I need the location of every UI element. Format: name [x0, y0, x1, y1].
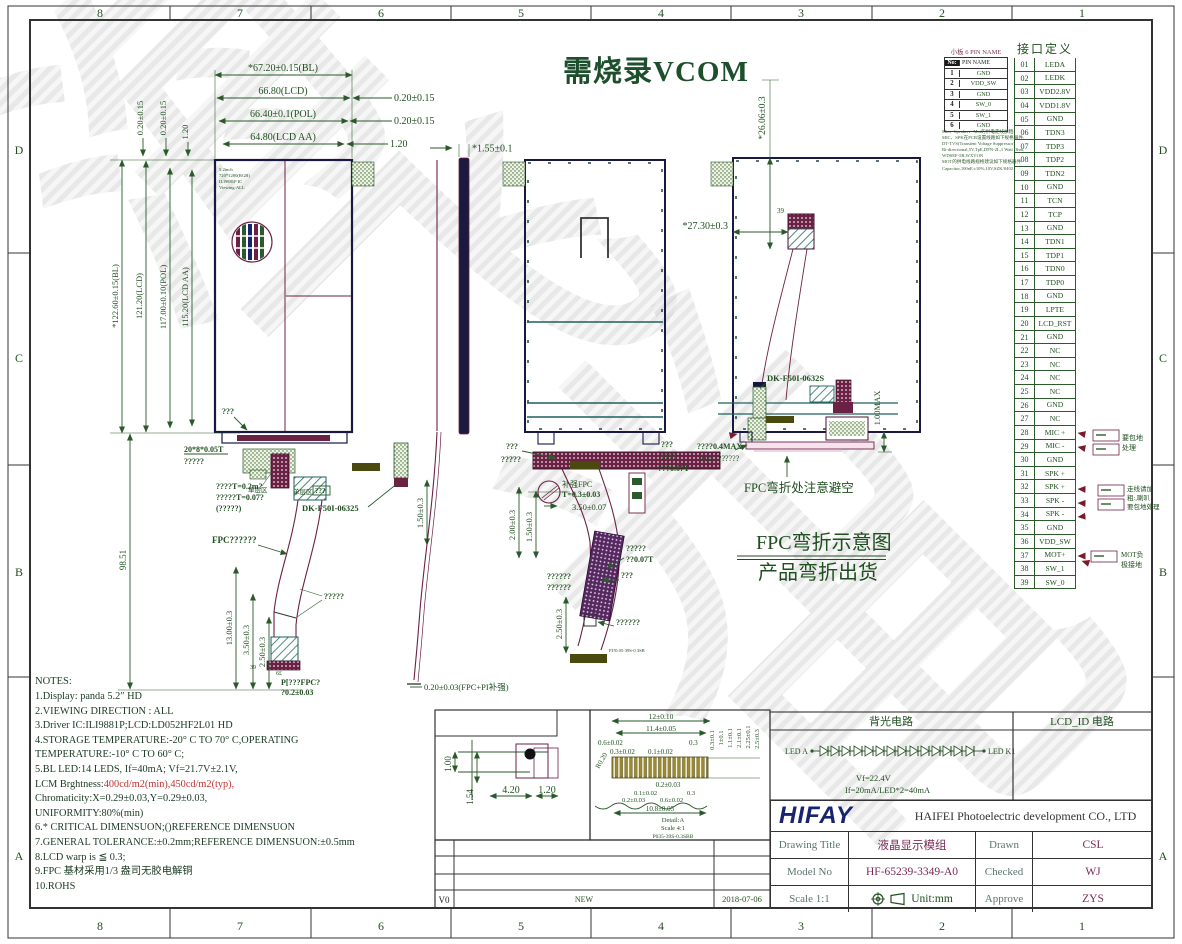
annotation: ??????: [547, 583, 571, 592]
table-row: 35 GND: [1014, 521, 1076, 535]
revision-code: V0: [439, 895, 450, 905]
dimension-label: 0.1±0.02: [634, 790, 657, 797]
detail-box: R0.20 12±0.10 11.4±0.05 0.6±0.02 0.3±0.0…: [590, 710, 770, 840]
zone-label: A: [15, 849, 24, 863]
note-line: Chromaticity:X=0.29±0.03,Y=0.29±0.03,: [35, 792, 435, 807]
backlight-circuit: 背光电路 LED A LED K1 Vf=22.4V If=20mA/LED*2…: [770, 712, 1152, 800]
detail-caption: P035-39S-0.3SBB: [653, 834, 694, 840]
table-row: 36 VDD_SW: [1014, 535, 1076, 549]
table-row: 10 GND: [1014, 181, 1076, 195]
zone-label: 7: [237, 6, 243, 20]
zone-label: C: [15, 351, 23, 365]
annotation: ???: [222, 407, 234, 416]
annotation: ???: [315, 487, 326, 495]
zone-label: 7: [237, 919, 243, 933]
rear-view: ??? ????? 补强FPC T=0.3±0.03 3.50±0.07 2.0…: [501, 160, 720, 663]
annotation: ????: [661, 452, 677, 461]
page-title: 需烧录VCOM: [563, 48, 749, 90]
dimension-label: 1.20: [180, 125, 190, 140]
table-row: 33 SPK -: [1014, 494, 1076, 508]
table-row: 08 TDP2: [1014, 153, 1076, 167]
table-row: 3 GND: [945, 89, 1007, 100]
zone-label: B: [15, 565, 23, 579]
table-row: 1 GND: [945, 68, 1007, 79]
dimension-label: 0.20±0.15: [135, 101, 145, 135]
if-label: If=20mA/LED*2=40mA: [845, 785, 931, 795]
table-row: 16 TDN0: [1014, 262, 1076, 276]
notch-outline: [581, 218, 608, 258]
note-line: 8.LCD warp is ≦ 0.3;: [35, 851, 435, 866]
annotation: FPC弯折处注意避空: [744, 480, 854, 495]
dimension-label: R0.20: [594, 751, 610, 770]
dimension-label: 12±0.10: [649, 712, 674, 721]
annotation: 20*8*0.05T: [184, 445, 224, 454]
dimension-label: 0.6±0.02: [660, 797, 683, 804]
table-row: 2 VDD_SW: [945, 78, 1007, 89]
table-row: 32 SPK +: [1014, 480, 1076, 494]
small-board-title: 小板 6 PIN NAME: [944, 46, 1008, 56]
table-row: 29 MIC -: [1014, 440, 1076, 454]
notes-list: 1.Display: panda 5.2″ HD 2.VIEWING DIREC…: [35, 690, 435, 894]
dimension-label: 1±0.1: [718, 731, 725, 746]
note-line: 2.VIEWING DIRECTION : ALL: [35, 705, 435, 720]
zone-label: 1: [1079, 919, 1085, 933]
pin-annotations: 要包地 处理 走线请加 粗:,喇叭 要包地处理 MOT负 极接地: [1078, 430, 1160, 577]
annotation: T=0.3±0.03: [562, 490, 600, 499]
annotation: ??????: [616, 618, 640, 627]
note-line: 3.Driver IC:ILI9881P;LCD:LD052HF2L01 HD: [35, 719, 435, 734]
checked-label: Checked: [976, 859, 1033, 885]
dimension-label: 66.80(LCD): [258, 86, 307, 97]
annotation: ?????: [324, 592, 344, 601]
note-line: TEMPERATURE:-10° C TO 60° C;: [35, 748, 435, 763]
dimension-label: *26.06±0.3: [758, 96, 768, 139]
table-row: 25 NC: [1014, 385, 1076, 399]
zone-label: 3: [798, 6, 804, 20]
dimension-label: 11.4±0.05: [646, 724, 676, 733]
annotation: FPC??????: [212, 535, 257, 545]
annotation: ???: [661, 440, 673, 449]
table-row: 27 NC: [1014, 412, 1076, 426]
dimension-label: 1.54: [465, 789, 475, 805]
table-row: 05 GND: [1014, 113, 1076, 127]
dimension-label: 2.00±0.3: [507, 510, 517, 540]
model-no-value: HF-65239-3349-A0: [849, 859, 976, 885]
dimension-label: 1.20: [538, 785, 556, 796]
connector-label: DK-F50I-0632S: [767, 373, 824, 383]
company-name: HAIFEI Photoelectric development CO., LT…: [899, 809, 1152, 824]
drawing-sheet: 海 飞 光 电: [0, 0, 1182, 944]
dimension-label: 1.00MAX: [872, 391, 882, 426]
table-row: 09 TDN2: [1014, 167, 1076, 181]
checked-value: WJ: [1033, 859, 1153, 885]
detail-caption: Scale 4:1: [661, 825, 685, 832]
drawn-value: CSL: [1033, 832, 1153, 858]
dimension-label: 2.5±0.3: [754, 729, 761, 749]
small-board-rows: 1 GND 2 VDD_SW 3 GND 4: [945, 68, 1007, 131]
note-line: 9.FPC 基材采用1/3 盎司无胶电解铜: [35, 865, 435, 880]
dimension-label: *122.60±0.15(BL): [110, 264, 120, 328]
front-fpc: ??? 20*8*0.05T ????? 单层区 单层区 ??? ????T=0…: [184, 407, 427, 697]
table-row: 30 GND: [1014, 453, 1076, 467]
zone-label: 6: [378, 919, 384, 933]
annotation: ??????: [547, 572, 571, 581]
zone-label: 2: [939, 6, 945, 20]
revision-table: V0 NEW 2018-07-06: [435, 840, 770, 908]
scale-label: Scale 1:1: [771, 886, 849, 912]
dimension-label: 13.00±0.3: [224, 611, 234, 645]
annotation: 要包地: [1122, 433, 1143, 442]
pin-table: 01 LEDA 02 LEDK 03 VDD2.8V 04 VDD1.8V 05…: [1014, 58, 1076, 589]
note-line: 10.ROHS: [35, 880, 435, 895]
table-row: 07 TDP3: [1014, 140, 1076, 154]
backlight-title: 背光电路: [869, 714, 913, 728]
note-line: 6.* CRITICAL DIMENSUON;()REFERENCE DIMEN…: [35, 821, 435, 836]
table-row: 34 SPK -: [1014, 508, 1076, 522]
dimension-label: 2.1±0.1: [736, 728, 743, 748]
zone-label: 6: [378, 6, 384, 20]
pin-number: 39: [777, 207, 785, 215]
dimension-label: *67.20±0.15(BL): [248, 63, 318, 74]
small-board-header: No: PIN NAME: [945, 58, 1007, 68]
annotation: ???0.07T: [658, 464, 690, 473]
zone-label: 3: [798, 919, 804, 933]
small-board-table: 小板 6 PIN NAME No: PIN NAME 1 GND 2 VDD_S…: [944, 46, 1008, 132]
unit-cell: Unit:mm: [849, 886, 976, 912]
projection-symbol-icon: [871, 892, 907, 906]
dimension-label: 0.20±0.15: [394, 93, 435, 104]
model-no-label: Model No: [771, 859, 849, 885]
dimension-label: *27.30±0.3: [683, 221, 729, 232]
note-line: 5.BL LED:14 LEDS, If=40mA; Vf=21.7V±2.1V…: [35, 763, 435, 778]
vf-label: Vf=22.4V: [856, 773, 892, 783]
annotation: ??0.07T: [626, 555, 654, 564]
side-view: *1.55±0.1 0.20±0.03(FPC+PI补强): [407, 144, 513, 693]
tape-pad: [352, 162, 374, 186]
dimension-label: 98.51: [118, 550, 128, 570]
dimension-label: 0.2±0.03: [656, 781, 681, 789]
table-row: 4 SW_0: [945, 99, 1007, 110]
front-left-dimensions: *122.60±0.15(BL) 121.20(LCD) 117.00±0.10…: [110, 160, 302, 690]
table-row: 02 LEDK: [1014, 72, 1076, 86]
table-row: 31 SPK +: [1014, 467, 1076, 481]
table-row: 5 SW_1: [945, 110, 1007, 121]
table-row: 26 GND: [1014, 399, 1076, 413]
zone-label: 8: [97, 6, 103, 20]
dimension-label: 0.1±0.02: [648, 748, 673, 756]
table-row: 11 TCN: [1014, 194, 1076, 208]
annotation: ???: [621, 571, 633, 580]
dimension-label: 3.50±0.07: [572, 502, 606, 512]
annotation: ?????T=0.07?: [216, 493, 264, 502]
led-cathode-label: LED K1: [988, 747, 1015, 756]
zone-label: 1: [1079, 6, 1085, 20]
zone-label: C: [1159, 351, 1167, 365]
bent-view: *26.06±0.3 *27.30±0.3 39 DK-F50I-0632S: [658, 80, 920, 495]
table-row: 03 VDD2.8V: [1014, 85, 1076, 99]
dimension-label: 117.00±0.10(POL): [158, 265, 168, 329]
dimension-label: 2.25±0.1: [745, 725, 752, 748]
company-logo: HIFAY: [779, 802, 899, 830]
drawing-title-value: 液晶显示模组: [849, 832, 976, 858]
table-row: 18 GND: [1014, 290, 1076, 304]
annotation: ????T=0.2m?: [216, 482, 263, 491]
table-row: 12 TCP: [1014, 208, 1076, 222]
annotation: ?????: [501, 455, 521, 464]
bend-caption-line2: 产品弯折出货: [758, 561, 878, 584]
annotation: 要包地处理: [1127, 502, 1160, 511]
dimension-label: 10.8±0.05: [646, 805, 675, 813]
dimension-label: 121.20(LCD): [134, 273, 144, 319]
zone-label: A: [1159, 849, 1168, 863]
bend-caption-line1: FPC弯折示意图: [756, 531, 892, 554]
dimension-label: 66.40±0.1(POL): [250, 109, 316, 120]
table-row: 39 SW_0: [1014, 576, 1076, 590]
table-row: 06 TDN3: [1014, 126, 1076, 140]
zone-label: 5: [518, 6, 524, 20]
annotation: 极接地: [1121, 560, 1142, 569]
table-row: 17 TDP0: [1014, 276, 1076, 290]
silver-paste-box: 1.00 1.54 4.20 1.20: [435, 710, 590, 840]
bend-caption: FPC弯折示意图 产品弯折出货: [737, 531, 892, 584]
dimension-label: 1.20: [390, 139, 408, 150]
detail-caption: Detail:A: [662, 817, 685, 824]
revision-desc: NEW: [575, 895, 594, 904]
table-row: 22 NC: [1014, 344, 1076, 358]
connector-label: DK-F50I-06325: [302, 503, 359, 513]
table-row: 20 LCD_RST: [1014, 317, 1076, 331]
annotation: 单层区: [293, 487, 313, 496]
annotation: MOT负: [1121, 550, 1144, 559]
front-view: 5.2inch 720*1280(RGB) ILI9881P IC Viewin…: [110, 63, 435, 697]
dimension-label: 1.50±0.3: [415, 498, 425, 528]
dimension-label: 0.2±0.03: [622, 797, 645, 804]
screen-info: 5.2inch 720*1280(RGB) ILI9881P IC Viewin…: [219, 167, 250, 190]
unit-label: Unit:mm: [911, 893, 953, 905]
dimension-label: 0.3±0.1: [709, 730, 716, 750]
pin-table-title: 接口定义: [1014, 40, 1076, 57]
zone-label: D: [15, 143, 24, 157]
dimension-label: 0.3: [687, 790, 695, 797]
zone-label: 5: [518, 919, 524, 933]
table-row: 28 MIC +: [1014, 426, 1076, 440]
drawn-label: Drawn: [976, 832, 1033, 858]
dimension-label: 0.20±0.15: [158, 101, 168, 135]
table-row: 37 MOT+: [1014, 549, 1076, 563]
silver-paste-dot: [525, 749, 536, 760]
table-row: 23 NC: [1014, 358, 1076, 372]
svg-text:720*1280(RGB): 720*1280(RGB): [219, 173, 250, 178]
dimension-label: 2.50±0.3: [554, 609, 564, 639]
approve-value: ZYS: [1033, 886, 1153, 912]
svg-text:5.2inch: 5.2inch: [219, 167, 233, 172]
annotation: 补强FPC: [562, 479, 592, 489]
table-row: 24 NC: [1014, 371, 1076, 385]
table-row: 21 GND: [1014, 331, 1076, 345]
lcd-id-title: LCD_ID 电路: [1050, 715, 1114, 728]
dimension-label: 1.1±0.1: [727, 728, 734, 748]
annotation: PI?0.05-39S-0.3SB: [609, 648, 645, 653]
front-top-dimensions: *67.20±0.15(BL) 66.80(LCD) 66.40±0.1(POL…: [135, 63, 435, 158]
notes-block: NOTES: 1.Display: panda 5.2″ HD 2.VIEWIN…: [35, 676, 435, 894]
dimension-label: 1.50±0.3: [524, 512, 534, 542]
dimension-label: *1.55±0.1: [472, 144, 513, 155]
table-row: 01 LEDA: [1014, 58, 1076, 72]
dimension-label: 1.00: [443, 756, 453, 772]
svg-text:Viewing:ALL: Viewing:ALL: [219, 185, 245, 190]
zone-label: 8: [97, 919, 103, 933]
annotation: 0.05T??????: [699, 454, 740, 463]
table-row: 14 TDN1: [1014, 235, 1076, 249]
dimension-label: 115.20(LCD AA): [180, 267, 190, 327]
dimension-label: 2.50±0.3: [257, 637, 267, 667]
dimension-label: 3.50±0.3: [241, 625, 251, 655]
annotation: ?????: [626, 544, 646, 553]
dimension-label: 0.6±0.02: [598, 739, 623, 747]
note-line: LCM Brghtness:400cd/m2(min),450cd/m2(typ…: [35, 778, 435, 793]
annotation: ?????: [184, 457, 204, 466]
table-row: 15 TDP1: [1014, 249, 1076, 263]
annotation: ???: [506, 442, 518, 451]
annotation: 处理: [1122, 443, 1136, 452]
dimension-label: 4.20: [502, 785, 520, 796]
note-line: 4.STORAGE TEMPERATURE:-20° C TO 70° C,OP…: [35, 734, 435, 749]
annotation: 0.20±0.03(FPC+PI补强): [424, 682, 509, 692]
drawing-title-label: Drawing Title: [771, 832, 849, 858]
note-line: 7.GENERAL TOLERANCE:±0.2mm;REFERENCE DIM…: [35, 836, 435, 851]
notes-heading: NOTES:: [35, 676, 435, 687]
title-block: HIFAY HAIFEI Photoelectric development C…: [770, 800, 1152, 908]
revision-date: 2018-07-06: [722, 894, 762, 904]
dimension-label: 0.20±0.15: [394, 116, 435, 127]
dimension-label: 64.80(LCD AA): [250, 132, 316, 143]
zone-label: D: [1159, 143, 1168, 157]
annotation: 粗:,喇叭: [1127, 493, 1150, 502]
note-line: UNIFORMITY:80%(min): [35, 807, 435, 822]
table-row: 04 VDD1.8V: [1014, 99, 1076, 113]
note-line: 1.Display: panda 5.2″ HD: [35, 690, 435, 705]
table-row: 38 SW_1: [1014, 562, 1076, 576]
dimension-label: 0.3: [689, 739, 698, 747]
table-row: 13 GND: [1014, 222, 1076, 236]
annotation: 走线请加: [1127, 484, 1153, 493]
table-row: 19 LPTE: [1014, 303, 1076, 317]
zone-label: 4: [658, 919, 664, 933]
svg-text:ILI9881P IC: ILI9881P IC: [219, 179, 242, 184]
led-anode-label: LED A: [785, 747, 808, 756]
dimension-label: 0.3±0.02: [610, 748, 635, 756]
annotation: (?????): [216, 504, 242, 513]
zone-label: B: [1159, 565, 1167, 579]
zone-label: 2: [939, 919, 945, 933]
approve-label: Approve: [976, 886, 1033, 912]
zone-label: 4: [658, 6, 664, 20]
